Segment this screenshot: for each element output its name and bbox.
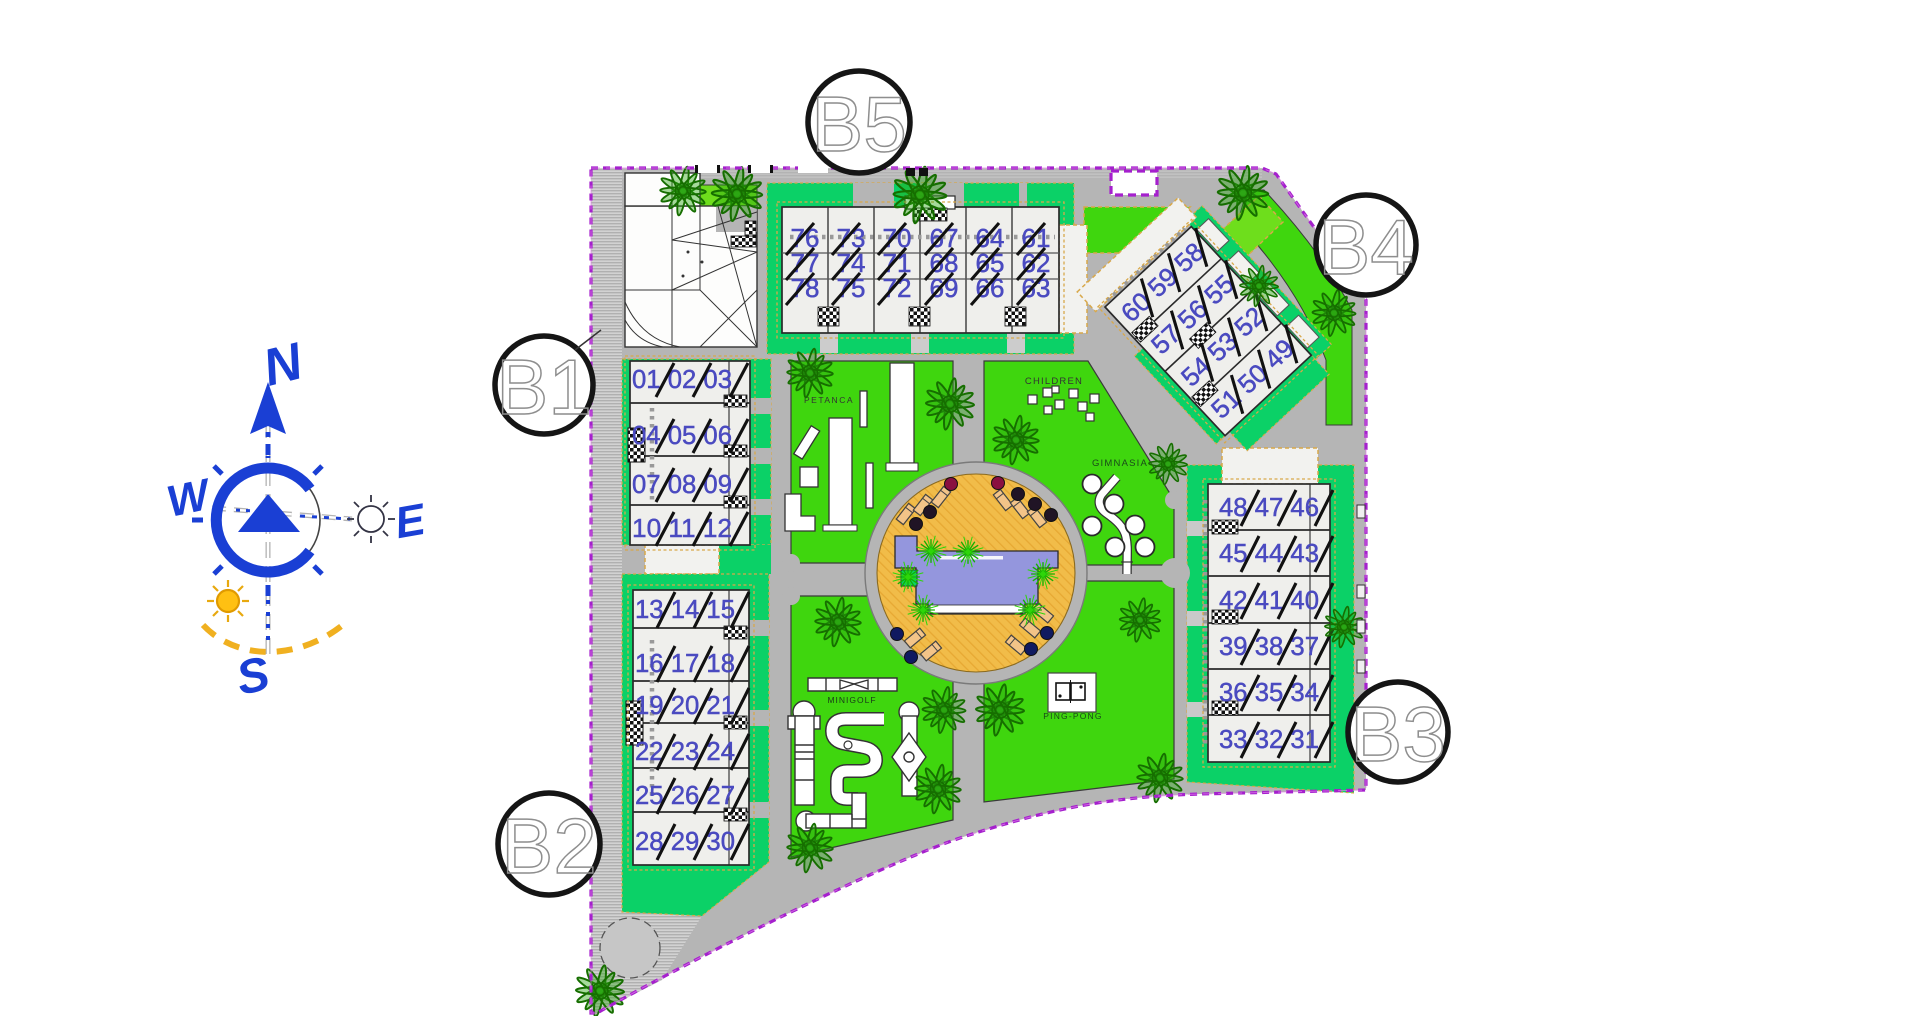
svg-text:25 26 27: 25 26 27 <box>635 780 735 810</box>
svg-text:GIMNASIA: GIMNASIA <box>1092 458 1148 469</box>
svg-text:B2: B2 <box>501 802 596 890</box>
svg-text:07 08 09: 07 08 09 <box>632 469 732 499</box>
svg-text:33 32 31: 33 32 31 <box>1219 724 1319 754</box>
svg-text:10 11 12: 10 11 12 <box>632 513 732 543</box>
svg-text:39 38 37: 39 38 37 <box>1219 631 1319 661</box>
svg-text:66: 66 <box>976 273 1005 303</box>
svg-text:CHILDREN: CHILDREN <box>1025 376 1083 387</box>
svg-text:28 29 30: 28 29 30 <box>635 826 735 856</box>
svg-text:69: 69 <box>930 273 959 303</box>
svg-text:01 02 03: 01 02 03 <box>632 364 732 394</box>
svg-text:B1: B1 <box>496 343 591 431</box>
svg-text:22 23 24: 22 23 24 <box>635 736 735 766</box>
svg-text:63: 63 <box>1022 273 1051 303</box>
svg-text:36 35 34: 36 35 34 <box>1219 677 1319 707</box>
svg-text:04 05 06: 04 05 06 <box>632 420 732 450</box>
svg-text:PETANCA: PETANCA <box>804 395 854 405</box>
svg-text:B5: B5 <box>811 80 906 168</box>
svg-text:48 47 46: 48 47 46 <box>1219 492 1319 522</box>
svg-text:B4: B4 <box>1318 203 1413 291</box>
svg-text:75: 75 <box>837 273 866 303</box>
svg-text:B3: B3 <box>1350 690 1445 778</box>
svg-text:45 44 43: 45 44 43 <box>1219 538 1319 568</box>
svg-text:MINIGOLF: MINIGOLF <box>827 695 876 705</box>
svg-text:78: 78 <box>791 273 820 303</box>
svg-text:13 14 15: 13 14 15 <box>635 594 735 624</box>
svg-text:PING-PONG: PING-PONG <box>1043 711 1102 721</box>
svg-text:16 17 18: 16 17 18 <box>635 648 735 678</box>
svg-text:72: 72 <box>883 273 912 303</box>
svg-text:19 20 21: 19 20 21 <box>635 690 735 720</box>
svg-text:42 41 40: 42 41 40 <box>1219 585 1319 615</box>
